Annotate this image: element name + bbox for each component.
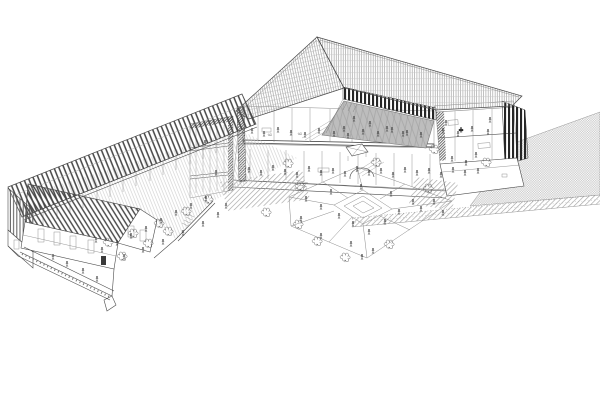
facade-door [101, 256, 106, 265]
architectural-drawing-canvas [0, 0, 600, 414]
right-louver-wall [502, 101, 528, 165]
axonometric-cutaway-drawing [0, 0, 600, 414]
